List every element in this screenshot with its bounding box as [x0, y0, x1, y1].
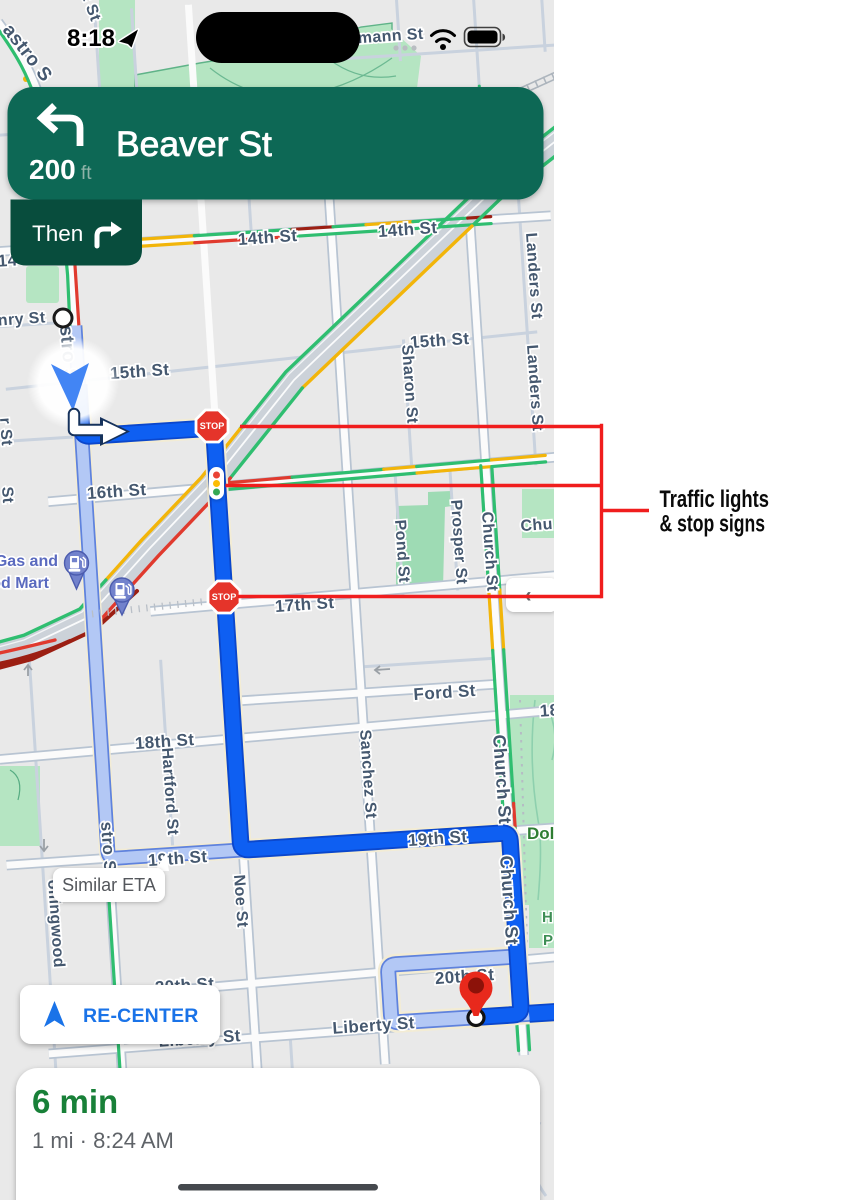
svg-text:Then: Then: [32, 221, 83, 246]
svg-text:Traffic lights: Traffic lights: [660, 486, 770, 513]
svg-text:8:18: 8:18: [67, 25, 115, 52]
svg-text:Chu: Chu: [520, 516, 553, 535]
svg-text:ft: ft: [81, 163, 92, 184]
svg-text:Gas and: Gas and: [0, 553, 58, 570]
svg-text:STOP: STOP: [200, 421, 225, 432]
svg-text:STOP: STOP: [212, 592, 237, 603]
svg-text:Dol: Dol: [527, 824, 554, 843]
svg-text:Beaver St: Beaver St: [116, 124, 272, 164]
svg-text:H: H: [542, 909, 553, 926]
svg-text:od Mart: od Mart: [0, 575, 50, 592]
svg-text:1 mi · 8:24 AM: 1 mi · 8:24 AM: [32, 1128, 174, 1153]
svg-text:& stop signs: & stop signs: [660, 511, 766, 538]
svg-text:Similar ETA: Similar ETA: [62, 875, 156, 895]
svg-text:200: 200: [29, 154, 76, 185]
svg-text:6 min: 6 min: [32, 1083, 118, 1120]
svg-text:nry St: nry St: [0, 309, 46, 329]
svg-text:r St: r St: [0, 417, 15, 447]
svg-text:RE-CENTER: RE-CENTER: [83, 1005, 199, 1027]
svg-text:P: P: [543, 932, 553, 949]
svg-text:St: St: [0, 486, 16, 504]
